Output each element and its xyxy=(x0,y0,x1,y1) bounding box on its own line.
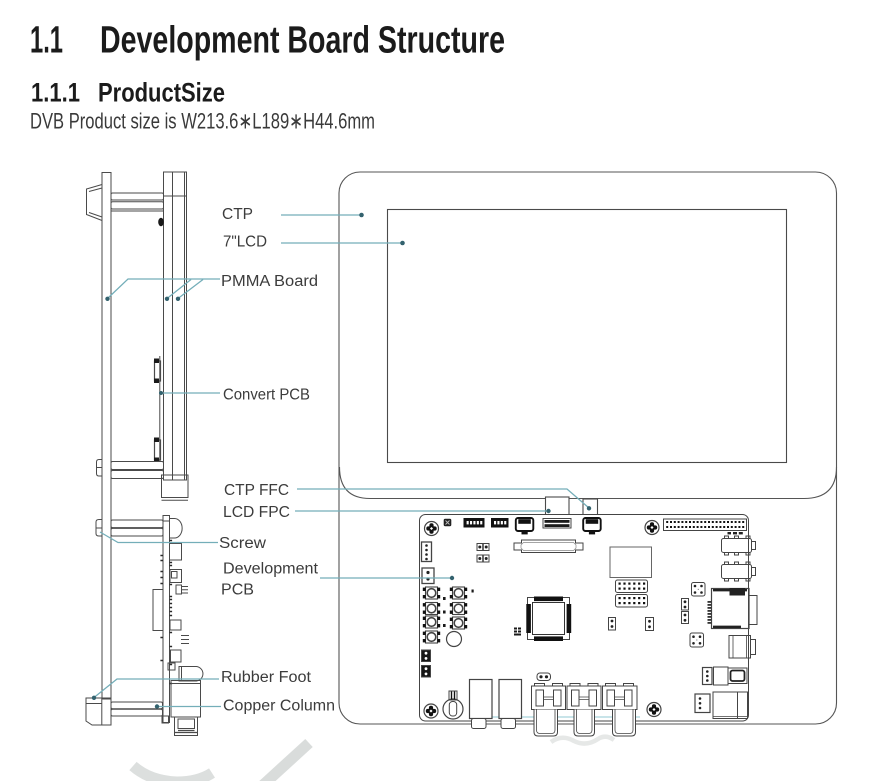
svg-text:CTP FFC: CTP FFC xyxy=(224,482,289,499)
svg-text:7"LCD: 7"LCD xyxy=(223,234,267,251)
svg-text:Copper Column: Copper Column xyxy=(223,698,335,715)
svg-text:Rubber Foot: Rubber Foot xyxy=(221,669,312,686)
svg-text:Screw: Screw xyxy=(219,535,267,552)
svg-text:Development: Development xyxy=(223,561,319,578)
svg-text:Convert PCB: Convert PCB xyxy=(223,387,310,404)
svg-text:1.1.1: 1.1.1 xyxy=(31,78,80,108)
svg-text:1.1: 1.1 xyxy=(30,20,63,62)
svg-text:PMMA Board: PMMA Board xyxy=(221,273,318,290)
svg-text:DVB Product size is W213.6∗L18: DVB Product size is W213.6∗L189∗H44.6mm xyxy=(30,109,375,134)
svg-text:LCD FPC: LCD FPC xyxy=(223,504,290,521)
svg-text:ProductSize: ProductSize xyxy=(98,78,225,108)
svg-text:CTP: CTP xyxy=(222,206,253,223)
svg-text:PCB: PCB xyxy=(221,582,254,599)
svg-text:Development Board Structure: Development Board Structure xyxy=(100,20,505,62)
